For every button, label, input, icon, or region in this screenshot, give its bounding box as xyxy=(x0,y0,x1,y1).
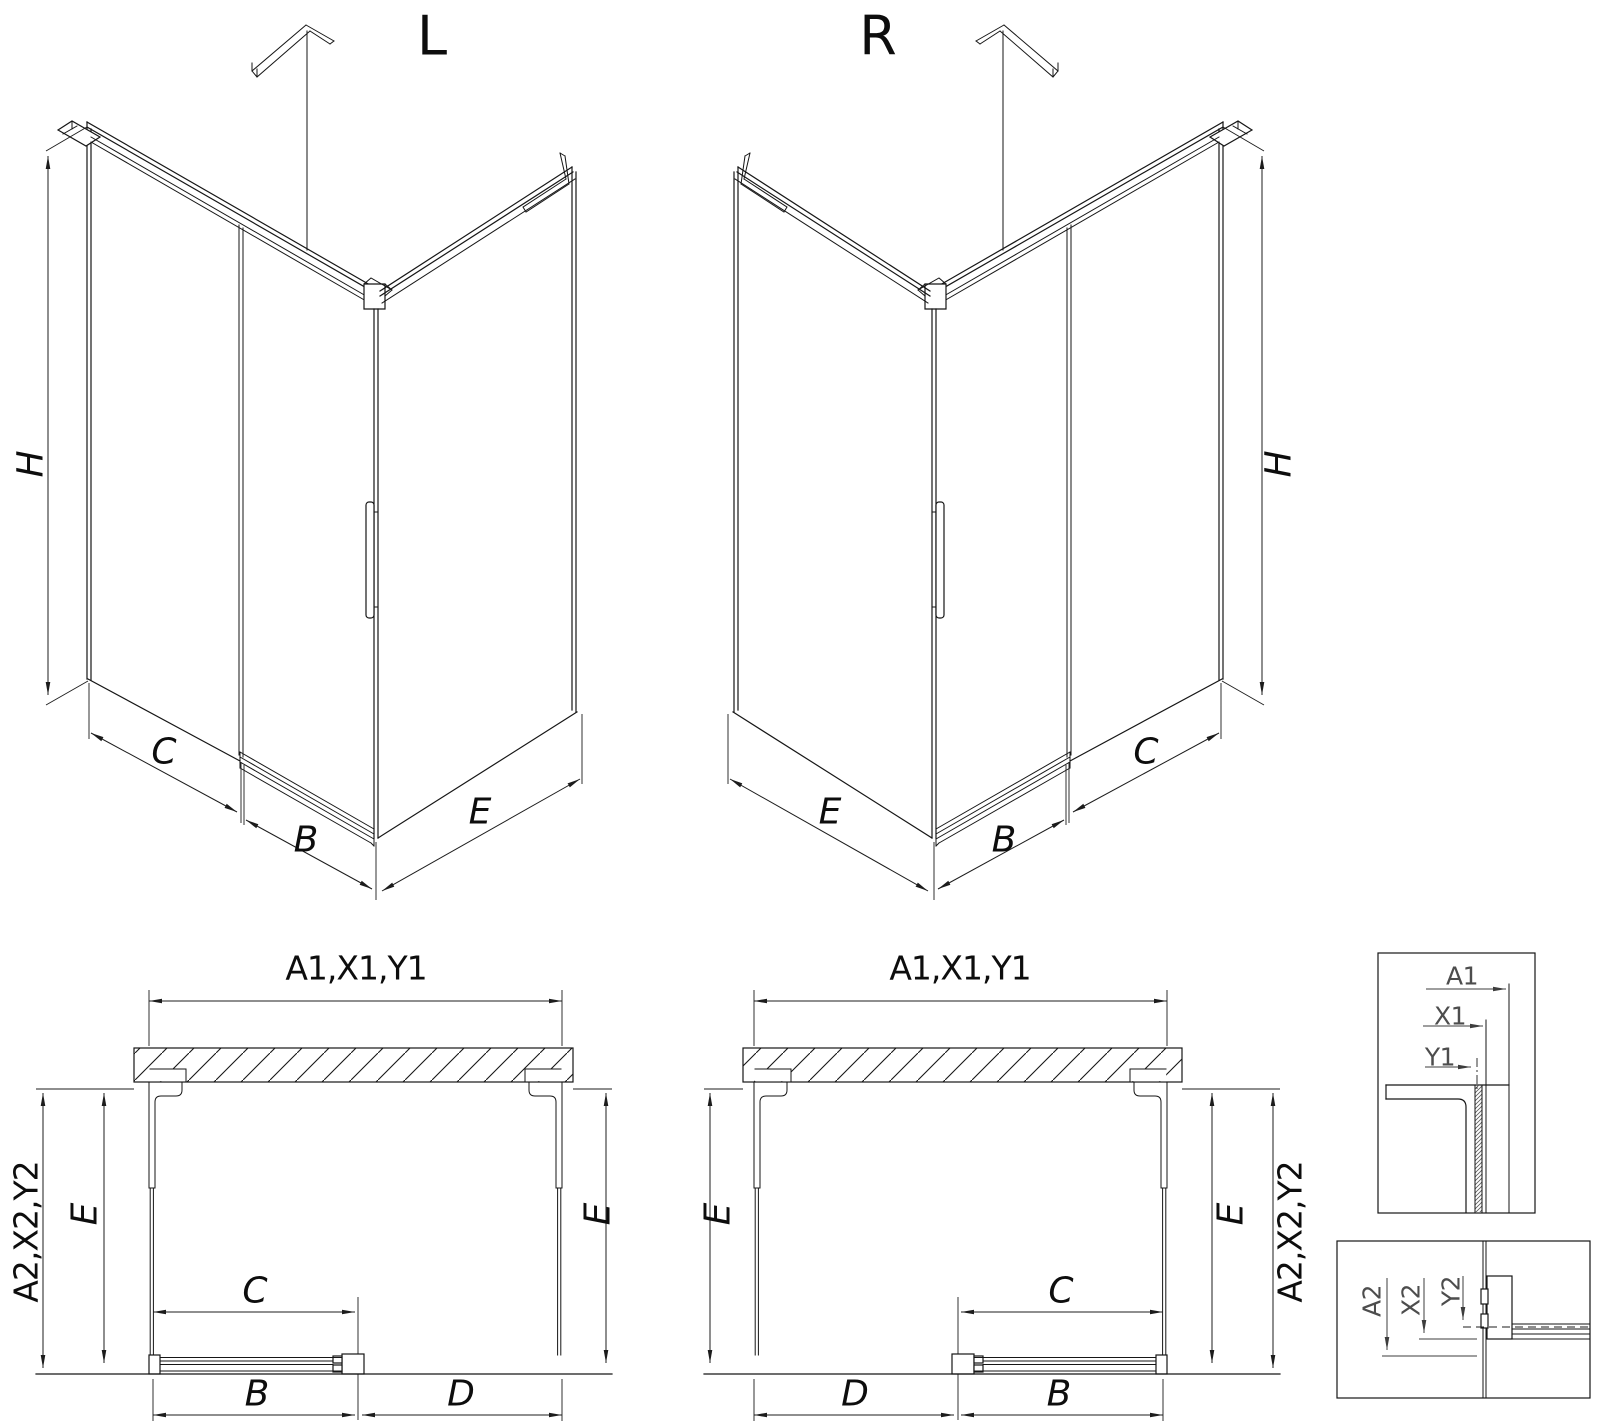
label-plan-left-dim-outer: A2,X2,Y2 xyxy=(7,1161,46,1302)
label-plan-right-dim-top: A1,X1,Y1 xyxy=(889,949,1030,988)
label-iso-right-dim-b: B xyxy=(992,820,1017,861)
label-plan-right-dim-e-left: E xyxy=(698,1202,739,1225)
plan-left-wall xyxy=(134,1048,573,1082)
label-iso-left-dim-c: C xyxy=(151,732,177,773)
iso-view-left xyxy=(46,25,582,900)
technical-drawing: LRHCBEEBCHA1,X1,Y1A2,X2,Y2EECBDA1,X1,Y1E… xyxy=(0,0,1600,1423)
detail-top-profile xyxy=(1378,953,1535,1213)
label-plan-right-dim-outer: A2,X2,Y2 xyxy=(1271,1161,1310,1302)
label-detail-top-dim-a1: A1 xyxy=(1446,962,1478,991)
plan-right-wall xyxy=(743,1048,1182,1082)
glass-panel-section xyxy=(1475,1085,1482,1212)
label-plan-left-dim-e-right: E xyxy=(578,1202,619,1225)
label-iso-left-dim-b: B xyxy=(294,820,319,861)
label-plan-right-dim-b: B xyxy=(1047,1374,1072,1415)
iso-view-right xyxy=(728,25,1264,900)
label-iso-left-title: L xyxy=(417,5,447,68)
label-iso-right-title: R xyxy=(859,5,897,68)
label-iso-left-dim-h: H xyxy=(11,450,52,477)
label-detail-bottom-dim-a2: A2 xyxy=(1358,1285,1387,1317)
label-detail-top-dim-x1: X1 xyxy=(1434,1002,1466,1031)
label-plan-right-dim-d: D xyxy=(841,1374,869,1415)
label-detail-top-dim-y1: Y1 xyxy=(1424,1043,1455,1072)
label-plan-left-dim-b: B xyxy=(245,1374,270,1415)
label-detail-bottom-dim-x2: X2 xyxy=(1397,1284,1426,1316)
label-plan-left-dim-c: C xyxy=(242,1271,268,1312)
label-iso-right-dim-c: C xyxy=(1133,732,1159,773)
label-plan-left-dim-d: D xyxy=(447,1374,475,1415)
label-plan-right-dim-e-right: E xyxy=(1211,1202,1252,1225)
track-profile-section xyxy=(1487,1276,1512,1339)
label-iso-left-dim-e: E xyxy=(469,792,492,833)
label-iso-right-dim-e: E xyxy=(819,792,842,833)
label-plan-left-dim-e-left: E xyxy=(65,1202,106,1225)
label-iso-right-dim-h: H xyxy=(1259,450,1300,477)
label-detail-bottom-dim-y2: Y2 xyxy=(1437,1276,1466,1307)
label-plan-left-dim-top: A1,X1,Y1 xyxy=(285,949,426,988)
wall-sections xyxy=(134,1048,1182,1082)
drawing-canvas: LRHCBEEBCHA1,X1,Y1A2,X2,Y2EECBDA1,X1,Y1E… xyxy=(0,0,1600,1423)
label-plan-right-dim-c: C xyxy=(1048,1271,1074,1312)
detail-bottom-profile xyxy=(1337,1241,1590,1398)
